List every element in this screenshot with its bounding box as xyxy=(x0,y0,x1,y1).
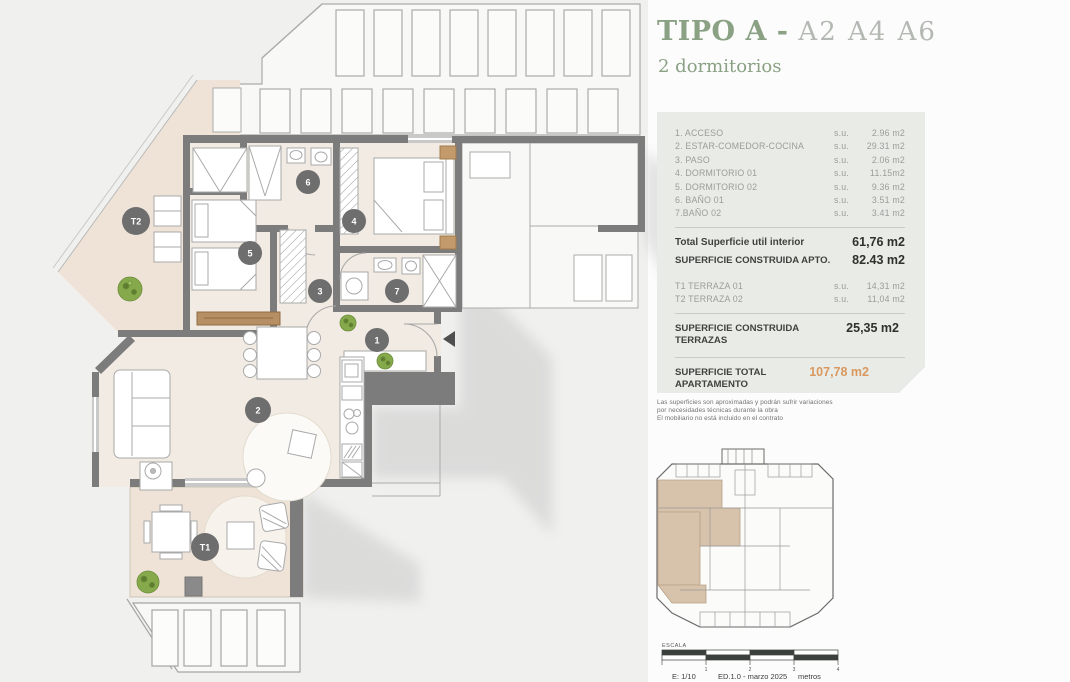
divider xyxy=(675,227,905,228)
room-row: 3. PASOs.u.2.06 m2 xyxy=(675,154,905,167)
keyplan xyxy=(657,449,833,627)
badge-terraza2: T2 xyxy=(122,207,150,235)
escala-label: ESCALA xyxy=(662,643,687,649)
construida-terrazas-row: SUPERFICIE CONSTRUIDA TERRAZAS 25,35 m2 xyxy=(675,321,905,347)
svg-text:1: 1 xyxy=(374,336,379,346)
svg-text:7: 7 xyxy=(394,287,399,297)
hall-closet xyxy=(280,230,306,303)
bedroom2-furniture xyxy=(192,148,256,290)
scale-ratio: E: 1/10 xyxy=(672,672,696,681)
room-row: 1. ACCESOs.u.2.96 m2 xyxy=(675,127,905,140)
svg-text:2: 2 xyxy=(255,406,260,416)
svg-text:T2: T2 xyxy=(131,217,142,227)
svg-text:T1: T1 xyxy=(200,543,211,553)
room-area-list: 1. ACCESOs.u.2.96 m2 2. ESTAR-COMEDOR-CO… xyxy=(675,127,905,221)
total-util-row: Total Superficie util interior 61,76 m2 xyxy=(675,235,905,249)
room-row: 2. ESTAR-COMEDOR-COCINAs.u.29.31 m2 xyxy=(675,140,905,153)
terrace-list: T1 TERRAZA 01s.u.14,31 m2 T2 TERRAZA 02s… xyxy=(675,280,905,307)
entrance-arrow-icon xyxy=(443,331,455,347)
railing-outline xyxy=(127,599,300,672)
terrace-row: T1 TERRAZA 01s.u.14,31 m2 xyxy=(675,280,905,293)
badge-bano1: 6 xyxy=(296,170,320,194)
svg-text:5: 5 xyxy=(247,249,252,259)
room-row: 7.BAÑO 02s.u.3.41 m2 xyxy=(675,207,905,220)
metros-label: metros xyxy=(798,672,821,681)
kitchen-counter xyxy=(340,357,364,478)
edition-label: ED.1.0 - marzo 2025 xyxy=(718,672,787,681)
type-label: TIPO A xyxy=(657,16,767,47)
scale-bar: ESCALA 1 2 3 4 xyxy=(662,643,840,681)
svg-text:1: 1 xyxy=(705,667,708,673)
divider xyxy=(675,313,905,314)
room-row: 6. BAÑO 01s.u.3.51 m2 xyxy=(675,194,905,207)
disclaimer: Las superficies son aproximadas y podrán… xyxy=(657,399,927,423)
total-apartamento-row: SUPERFICIE TOTAL APARTAMENTO 107,78 m2 xyxy=(675,365,905,391)
svg-text:4: 4 xyxy=(837,667,840,673)
badge-paso: 3 xyxy=(308,279,332,303)
page-subtitle: 2 dormitorios xyxy=(658,56,781,77)
svg-text:3: 3 xyxy=(317,287,322,297)
divider xyxy=(675,357,905,358)
badge-dorm2: 5 xyxy=(238,241,262,265)
page-title: TIPO A - A2 A4 A6 xyxy=(657,16,937,47)
adjacent-unit-outline xyxy=(213,4,640,135)
badge-dorm1: 4 xyxy=(342,209,366,233)
plan-sheet: 1 2 3 4 5 6 7 T1 T2 xyxy=(0,0,1070,682)
room-row: 4. DORMITORIO 01s.u.11.15m2 xyxy=(675,167,905,180)
room-row: 5. DORMITORIO 02s.u.9.36 m2 xyxy=(675,181,905,194)
badge-terraza1: T1 xyxy=(191,533,219,561)
area-summary-panel: 1. ACCESOs.u.2.96 m2 2. ESTAR-COMEDOR-CO… xyxy=(657,112,925,393)
bedroom1-furniture xyxy=(340,146,456,249)
unit-codes: A2 A4 A6 xyxy=(798,17,936,47)
svg-text:6: 6 xyxy=(305,178,310,188)
terrace-row: T2 TERRAZA 02s.u.11,04 m2 xyxy=(675,293,905,306)
svg-text:4: 4 xyxy=(351,217,356,227)
svg-text:3: 3 xyxy=(793,667,796,673)
badge-estar: 2 xyxy=(245,397,271,423)
badge-bano2: 7 xyxy=(385,279,409,303)
construida-apto-row: SUPERFICIE CONSTRUIDA APTO. 82.43 m2 xyxy=(675,253,905,267)
badge-acceso: 1 xyxy=(365,328,389,352)
